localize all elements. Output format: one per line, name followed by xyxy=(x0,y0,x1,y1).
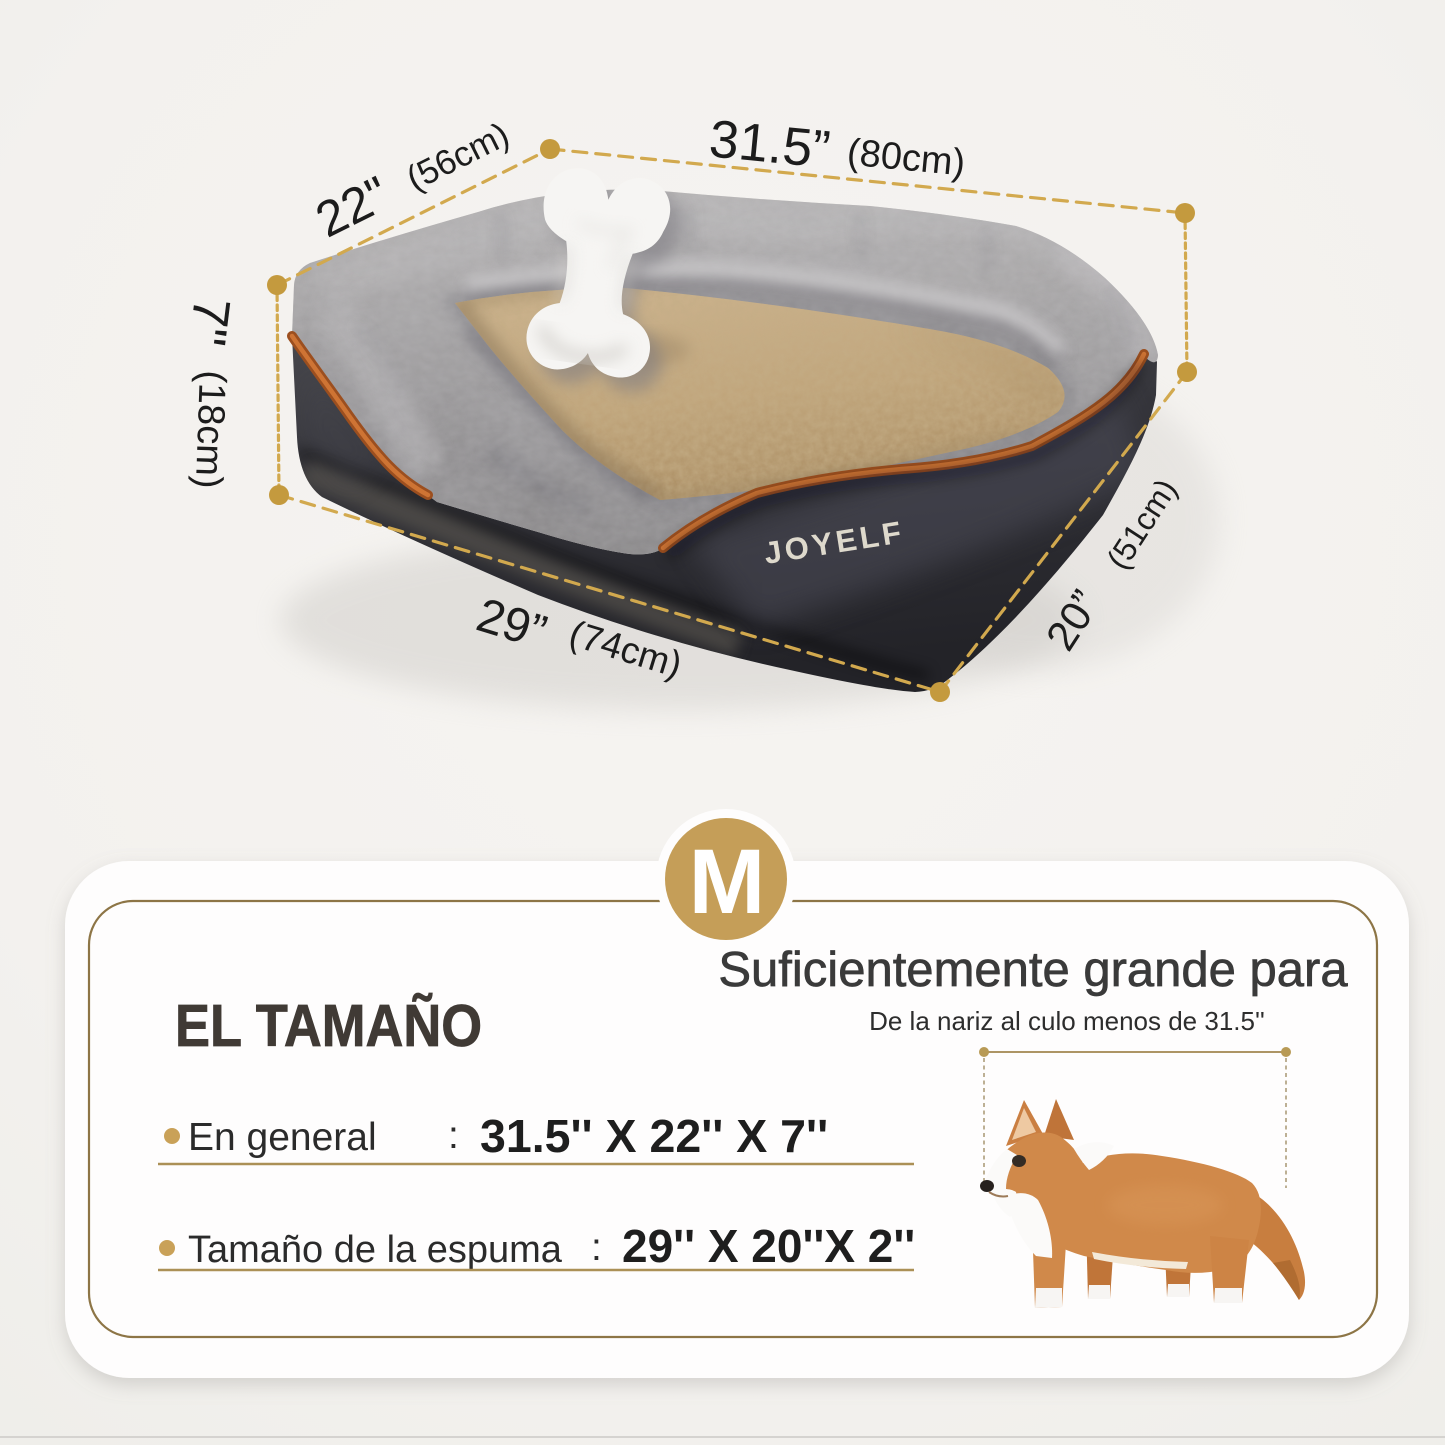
svg-text:Suficientemente grande para: Suficientemente grande para xyxy=(718,943,1348,997)
svg-text::: : xyxy=(591,1226,602,1269)
svg-text:M: M xyxy=(689,831,766,933)
svg-text:31.5”: 31.5” xyxy=(707,109,833,179)
svg-text:31.5'' X 22'' X 7'': 31.5'' X 22'' X 7'' xyxy=(480,1110,828,1162)
svg-text:(18cm): (18cm) xyxy=(187,370,233,490)
svg-text:De la nariz al culo menos de 3: De la nariz al culo menos de 31.5'' xyxy=(869,1006,1265,1036)
svg-text:29'' X 20''X 2'': 29'' X 20''X 2'' xyxy=(622,1220,915,1272)
svg-text:EL TAMAÑO: EL TAMAÑO xyxy=(175,992,482,1059)
svg-text:En general: En general xyxy=(188,1116,377,1159)
svg-text:7": 7" xyxy=(177,295,240,349)
svg-text::: : xyxy=(448,1114,459,1157)
svg-text:Tamaño de la espuma: Tamaño de la espuma xyxy=(188,1229,563,1271)
